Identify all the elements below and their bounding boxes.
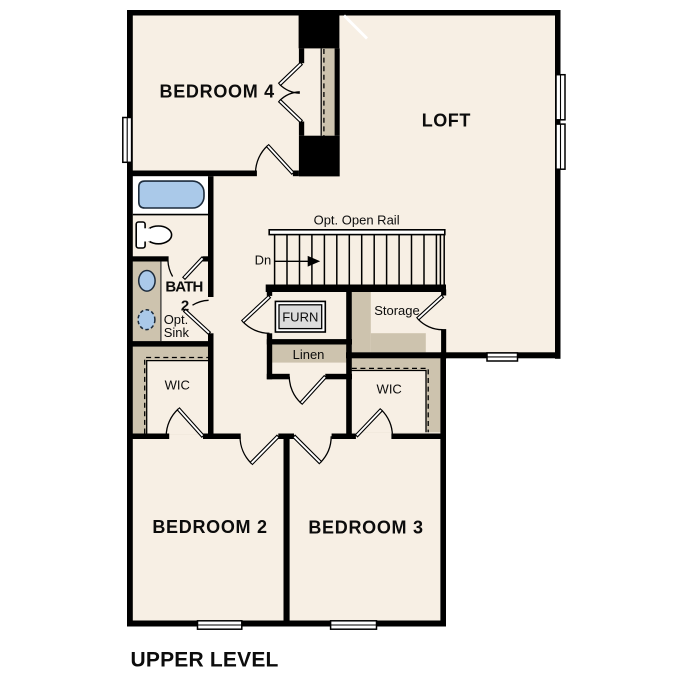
svg-text:WIC: WIC xyxy=(165,378,190,393)
svg-text:Sink: Sink xyxy=(164,325,190,340)
svg-text:BATH: BATH xyxy=(165,278,202,295)
svg-text:UPPER LEVEL: UPPER LEVEL xyxy=(131,649,279,672)
svg-text:Storage: Storage xyxy=(374,303,420,318)
svg-text:Dn: Dn xyxy=(255,252,272,267)
svg-text:LOFT: LOFT xyxy=(422,111,471,131)
svg-text:BEDROOM 3: BEDROOM 3 xyxy=(308,517,423,537)
svg-text:BEDROOM 2: BEDROOM 2 xyxy=(152,517,267,537)
svg-text:Opt. Open Rail: Opt. Open Rail xyxy=(314,212,400,227)
svg-text:FURN: FURN xyxy=(282,309,318,324)
svg-text:Linen: Linen xyxy=(293,347,325,362)
svg-text:BEDROOM 4: BEDROOM 4 xyxy=(160,82,275,102)
svg-text:WIC: WIC xyxy=(377,381,402,396)
